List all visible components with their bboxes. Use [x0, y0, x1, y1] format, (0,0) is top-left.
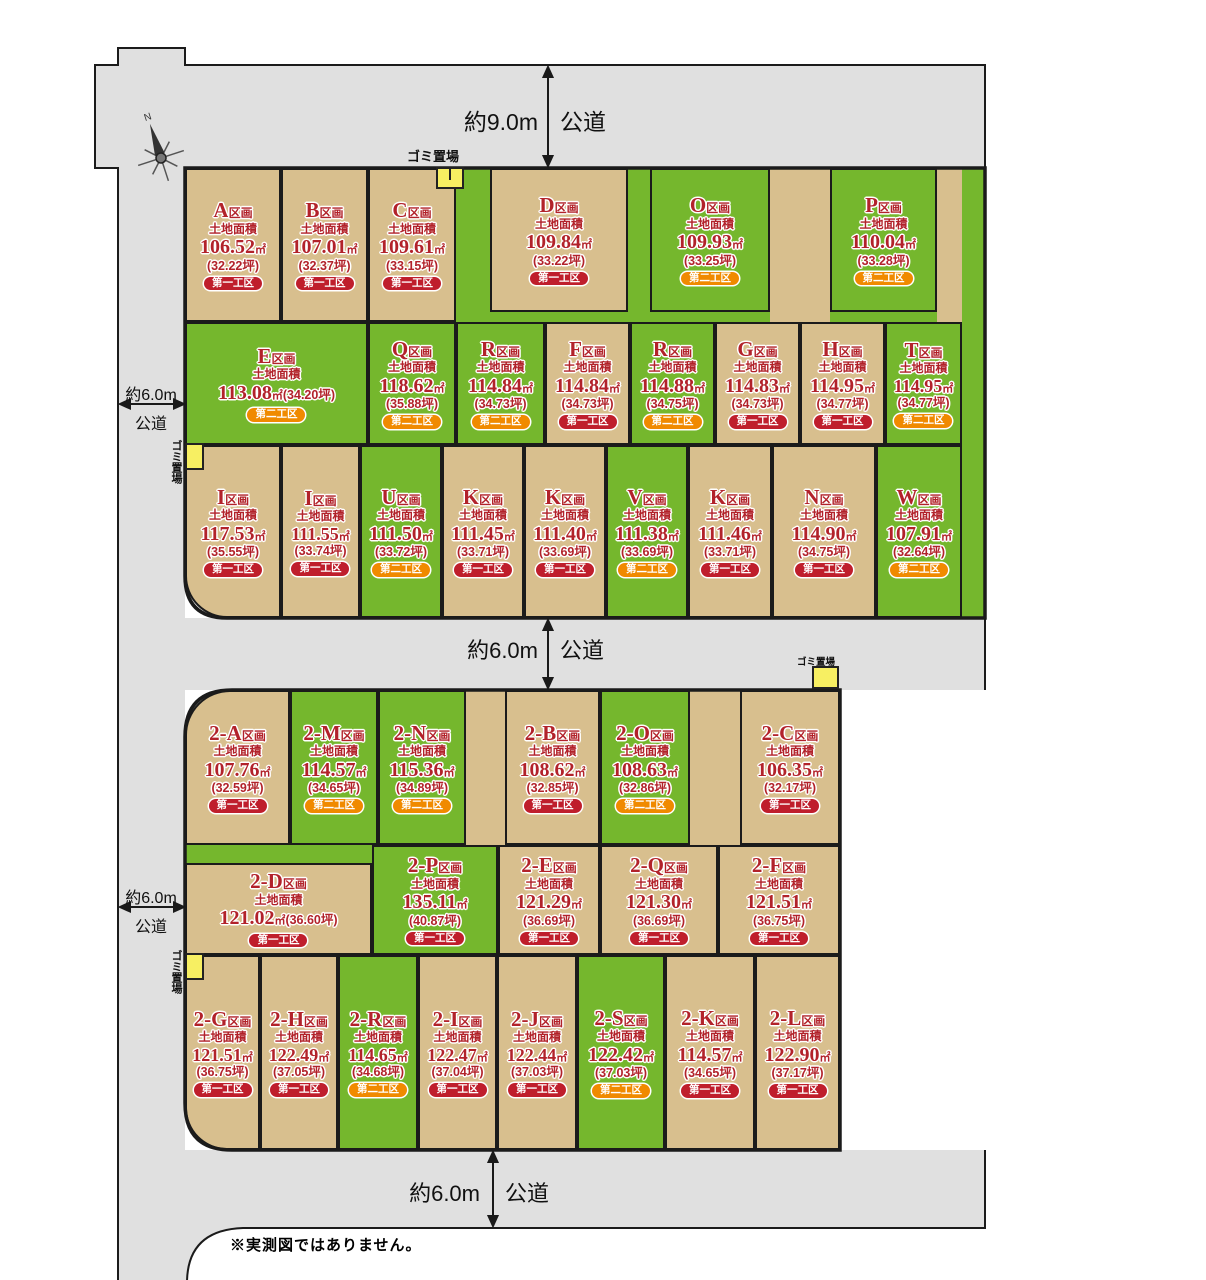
plot-label: V区画土地面積111.38㎡(33.69坪)第二工区	[615, 486, 679, 577]
plot-cell-2J: 2-J区画土地面積122.44㎡(37.03坪)第一工区	[497, 955, 577, 1150]
plot-area-value: 107.01㎡	[292, 236, 358, 258]
plot-tsubo-value: (32.86坪)	[612, 781, 678, 795]
plot-label: 2-A区画土地面積107.76㎡(32.59坪)第一工区	[205, 722, 271, 813]
phase-badge: 第一工区	[204, 563, 262, 577]
plot-area-title: 土地面積	[379, 223, 445, 236]
plot-area-value: 114.90㎡	[792, 523, 857, 545]
phase-badge: 第二工区	[890, 563, 948, 577]
road-middle-width-label: 約6.0m	[425, 633, 538, 665]
plot-cell-R1: R区画土地面積114.84㎡(34.73坪)第二工区	[456, 322, 545, 445]
plot-label: 2-N区画土地面積115.36㎡(34.89坪)第二工区	[390, 722, 455, 813]
disclaimer-note: ※実測図ではありません。	[230, 1234, 422, 1255]
plot-letter: B	[305, 198, 319, 222]
plot-label: A区画土地面積106.52㎡(32.22坪)第一工区	[200, 199, 266, 290]
plot-cell-W: W区画土地面積107.91㎡(32.64坪)第二工区	[876, 445, 962, 618]
phase-badge: 第一工区	[769, 1084, 827, 1098]
garbage-label-right: ゴミ置場	[797, 654, 835, 668]
plot-letter: 2-S	[594, 1006, 623, 1030]
plot-area-title: 土地面積	[886, 509, 952, 522]
plot-letter: E	[257, 344, 271, 368]
phase-badge: 第二工区	[644, 415, 702, 429]
phase-badge: 第一工区	[761, 799, 819, 813]
plot-area-title: 土地面積	[746, 878, 812, 891]
plot-label: 2-G区画土地面積121.51㎡(36.75坪)第一工区	[192, 1008, 253, 1098]
plot-area-value: 111.38㎡	[615, 523, 679, 545]
phase-badge: 第一工区	[406, 932, 464, 946]
phase-badge: 第一工区	[630, 932, 688, 946]
plot-area-value: 114.84㎡	[468, 375, 533, 397]
phase-badge: 第二工区	[855, 272, 913, 286]
plot-tsubo-value: (34.65坪)	[302, 781, 367, 795]
plot-cell-I2: I区画土地面積111.55㎡(33.74坪)第一工区	[281, 445, 360, 618]
garbage-label-left-upper: ゴミ置場	[168, 440, 184, 484]
plot-area-title: 土地面積	[792, 509, 857, 522]
plot-area-title: 土地面積	[468, 361, 533, 374]
plot-area-title: 土地面積	[640, 361, 705, 374]
phase-badge: 第二工区	[393, 799, 451, 813]
plot-letter: 2-H	[270, 1007, 304, 1031]
plot-label: 2-H区画土地面積122.49㎡(37.05坪)第一工区	[269, 1008, 330, 1098]
plot-letter: 2-R	[350, 1007, 383, 1031]
plot-area-value: 111.46㎡	[698, 523, 762, 545]
plot-tsubo-value: (37.05坪)	[269, 1065, 330, 1079]
plot-tsubo-value: (34.77坪)	[810, 397, 875, 411]
plot-label: I区画土地面積117.53㎡(35.55坪)第一工区	[201, 486, 266, 577]
plot-label: D区画土地面積109.84㎡(33.22坪)第一工区	[526, 194, 592, 285]
plot-label: 2-K区画土地面積114.57㎡(34.65坪)第一工区	[678, 1007, 743, 1098]
plot-tsubo-value: (33.69坪)	[615, 545, 679, 559]
plot-area-value: 106.52㎡	[200, 236, 266, 258]
plot-area-value: 111.50㎡	[369, 523, 433, 545]
plot-cell-D: D区画土地面積109.84㎡(33.22坪)第一工区	[490, 168, 628, 312]
plot-letter: Q	[392, 337, 408, 361]
plot-area-value: 108.63㎡	[612, 759, 678, 781]
phase-badge: 第一工区	[270, 1083, 328, 1097]
road-top-width-label: 約9.0m	[420, 103, 538, 137]
plot-tsubo-value: (34.89坪)	[390, 781, 455, 795]
plot-area-title: 土地面積	[292, 223, 358, 236]
phase-badge: 第一工区	[204, 277, 262, 291]
plot-letter: 2-M	[303, 721, 340, 745]
plot-tsubo-value: (34.65坪)	[678, 1066, 743, 1080]
plot-label: 2-R区画土地面積114.65㎡(34.68坪)第二工区	[348, 1008, 408, 1098]
phase-badge: 第二工区	[247, 408, 305, 422]
plot-cell-P: P区画土地面積110.04㎡(33.28坪)第二工区	[830, 168, 937, 312]
land-plot-map: A区画土地面積106.52㎡(32.22坪)第一工区B区画土地面積107.01㎡…	[0, 0, 1206, 1280]
plot-area-value: 122.42㎡	[588, 1044, 654, 1066]
plot-letter: F	[569, 337, 582, 361]
plot-area-value: 114.65㎡	[348, 1045, 408, 1066]
phase-badge: 第二工区	[472, 415, 530, 429]
plot-cell-2N: 2-N区画土地面積115.36㎡(34.89坪)第二工区	[378, 690, 466, 845]
road-top-type-label: 公道	[560, 103, 606, 137]
plot-area-title: 土地面積	[516, 878, 582, 891]
plot-letter: K	[710, 485, 726, 509]
plot-label: K区画土地面積111.45㎡(33.71坪)第一工区	[451, 486, 515, 577]
plot-tsubo-value: (36.69坪)	[516, 914, 582, 928]
plot-label: K区画土地面積111.46㎡(33.71坪)第一工区	[698, 486, 762, 577]
plot-cell-C: C区画土地面積109.61㎡(33.15坪)第一工区	[368, 168, 456, 322]
phase-badge: 第二工区	[681, 272, 739, 286]
phase-badge: 第一工区	[524, 799, 582, 813]
plot-cell-B: B区画土地面積107.01㎡(32.37坪)第一工区	[281, 168, 368, 322]
plot-tsubo-value: (33.22坪)	[526, 254, 592, 268]
plot-area-title: 土地面積	[526, 218, 592, 231]
plot-letter: 2-E	[521, 853, 553, 877]
plot-area-value: 107.76㎡	[205, 759, 271, 781]
plot-label: 2-P区画土地面積135.11㎡(40.87坪)第一工区	[403, 854, 468, 945]
plot-label: 2-F区画土地面積121.51㎡(36.75坪)第一工区	[746, 854, 812, 945]
plot-letter: 2-P	[408, 853, 438, 877]
plot-cell-O: O区画土地面積109.93㎡(33.25坪)第二工区	[650, 168, 770, 312]
plot-area-value: 108.62㎡	[520, 759, 586, 781]
plot-area-title: 土地面積	[269, 1031, 330, 1044]
plot-area-title: 土地面積	[626, 878, 692, 891]
plot-area-value: 114.95㎡	[894, 376, 954, 397]
plot-letter: 2-K	[681, 1006, 715, 1030]
plot-tsubo-value: (33.71坪)	[698, 545, 762, 559]
plot-label: 2-Q区画土地面積121.30㎡(36.69坪)第一工区	[626, 854, 692, 945]
plot-cell-R2: R区画土地面積114.88㎡(34.75坪)第二工区	[630, 322, 715, 445]
plot-label: K区画土地面積111.40㎡(33.69坪)第一工区	[533, 486, 597, 577]
plot-extension-area	[456, 168, 490, 322]
plot-cell-2I: 2-I区画土地面積122.47㎡(37.04坪)第一工区	[418, 955, 497, 1150]
plot-extension-area	[937, 168, 962, 322]
phase-badge: 第一工区	[559, 415, 617, 429]
plot-label: R区画土地面積114.84㎡(34.73坪)第二工区	[468, 338, 533, 429]
plot-area-title: 土地面積	[678, 1030, 743, 1043]
plot-area-value: 109.84㎡	[526, 231, 592, 253]
plot-tsubo-value: (37.03坪)	[507, 1065, 568, 1079]
plot-extension-area	[770, 168, 830, 322]
plot-label: 2-L区画土地面積122.90㎡(37.17坪)第一工区	[765, 1007, 831, 1098]
plot-area-value: 121.02㎡(36.60坪)	[219, 907, 337, 929]
phase-badge: 第二工区	[383, 415, 441, 429]
phase-badge: 第一工区	[454, 563, 512, 577]
plot-letter: P	[865, 193, 878, 217]
plot-cell-Q: Q区画土地面積118.62㎡(35.88坪)第二工区	[368, 322, 456, 445]
plot-tsubo-value: (34.75坪)	[640, 397, 705, 411]
plot-area-title: 土地面積	[810, 361, 875, 374]
plot-label: 2-J区画土地面積122.44㎡(37.03坪)第一工区	[507, 1008, 568, 1098]
plot-extension-area	[466, 690, 505, 845]
plot-area-value: 117.53㎡	[201, 523, 266, 545]
plot-area-title: 土地面積	[757, 745, 823, 758]
phase-badge: 第一工区	[795, 563, 853, 577]
plot-area-value: 121.51㎡	[746, 891, 812, 913]
plot-letter: 2-F	[752, 853, 782, 877]
plot-cell-2E: 2-E区画土地面積121.29㎡(36.69坪)第一工区	[498, 845, 600, 955]
plot-extension-area	[490, 312, 628, 322]
plot-tsubo-value: (32.59坪)	[205, 781, 271, 795]
plot-area-title: 土地面積	[291, 510, 350, 523]
plot-area-value: 121.30㎡	[626, 891, 692, 913]
plot-cell-2C: 2-C区画土地面積106.35㎡(32.17坪)第一工区	[740, 690, 840, 845]
plot-extension-area	[830, 312, 937, 322]
plot-area-value: 111.55㎡	[291, 524, 350, 545]
phase-badge: 第一工区	[701, 563, 759, 577]
phase-badge: 第一工区	[729, 415, 787, 429]
plot-area-value: 107.91㎡	[886, 523, 952, 545]
plot-letter: W	[896, 485, 917, 509]
plot-label: C区画土地面積109.61㎡(33.15坪)第一工区	[379, 199, 445, 290]
phase-badge: 第一工区	[530, 272, 588, 286]
plot-cell-2S: 2-S区画土地面積122.42㎡(37.03坪)第二工区	[577, 955, 665, 1150]
plot-tsubo-value: (37.17坪)	[765, 1066, 831, 1080]
plot-letter: 2-O	[616, 721, 650, 745]
plot-letter: K	[463, 485, 479, 509]
plot-letter: A	[213, 198, 228, 222]
plot-cell-T: T区画土地面積114.95㎡(34.77坪)第二工区	[885, 322, 962, 445]
plot-cell-2D: 2-D区画土地面積121.02㎡(36.60坪)第一工区	[185, 863, 372, 955]
phase-badge: 第一工区	[814, 415, 872, 429]
plot-letter: I	[217, 485, 225, 509]
phase-badge: 第一工区	[249, 934, 307, 948]
plot-area-value: 135.11㎡	[403, 891, 468, 913]
plot-label: Q区画土地面積118.62㎡(35.88坪)第二工区	[380, 338, 445, 429]
plot-letter: D	[539, 193, 554, 217]
plot-label: 2-I区画土地面積122.47㎡(37.04坪)第一工区	[427, 1008, 488, 1098]
plot-area-value: 109.93㎡	[677, 231, 743, 253]
plot-extension-area	[962, 168, 985, 618]
plot-cell-2K: 2-K区画土地面積114.57㎡(34.65坪)第一工区	[665, 955, 755, 1150]
plot-tsubo-value: (36.75坪)	[192, 1065, 253, 1079]
plot-cell-K3: K区画土地面積111.46㎡(33.71坪)第一工区	[688, 445, 772, 618]
phase-badge: 第一工区	[508, 1083, 566, 1097]
plot-cell-2R: 2-R区画土地面積114.65㎡(34.68坪)第二工区	[338, 955, 418, 1150]
phase-badge: 第一工区	[429, 1083, 487, 1097]
plot-label: N区画土地面積114.90㎡(34.75坪)第一工区	[792, 486, 857, 577]
plot-cell-U: U区画土地面積111.50㎡(33.72坪)第二工区	[360, 445, 442, 618]
road-left-lower-width-label: 約6.0m	[118, 884, 184, 908]
plot-tsubo-value: (32.22坪)	[200, 259, 266, 273]
plot-letter: I	[304, 486, 312, 510]
plot-area-value: 114.83㎡	[725, 375, 790, 397]
plot-area-value: 122.90㎡	[765, 1044, 831, 1066]
plot-letter: C	[392, 198, 407, 222]
plot-area-value: 106.35㎡	[757, 759, 823, 781]
plot-area-value: 114.57㎡	[678, 1044, 743, 1066]
plot-letter: 2-I	[433, 1007, 459, 1031]
plot-area-title: 土地面積	[851, 218, 916, 231]
phase-badge: 第二工区	[592, 1084, 650, 1098]
plot-area-value: 109.61㎡	[379, 236, 445, 258]
plot-tsubo-value: (34.73坪)	[725, 397, 790, 411]
plot-cell-V: V区画土地面積111.38㎡(33.69坪)第二工区	[606, 445, 688, 618]
plot-tsubo-value: (33.74坪)	[291, 544, 350, 558]
plot-letter: N	[804, 485, 819, 509]
plot-cell-2H: 2-H区画土地面積122.49㎡(37.05坪)第一工区	[260, 955, 338, 1150]
garbage-label-left-lower: ゴミ置場	[168, 950, 184, 994]
plot-area-value: 111.45㎡	[451, 523, 515, 545]
plot-tsubo-value: (40.87坪)	[403, 914, 468, 928]
plot-extension-area	[628, 168, 650, 322]
plot-area-title: 土地面積	[451, 509, 515, 522]
plot-tsubo-value: (34.75坪)	[792, 545, 857, 559]
plot-area-value: 115.36㎡	[390, 759, 455, 781]
plot-letter: O	[690, 193, 706, 217]
plot-tsubo-value: (36.75坪)	[746, 914, 812, 928]
plot-label: H区画土地面積114.95㎡(34.77坪)第一工区	[810, 338, 875, 429]
plot-area-title: 土地面積	[380, 361, 445, 374]
plot-area-value: 111.40㎡	[533, 523, 597, 545]
plot-area-title: 土地面積	[533, 509, 597, 522]
plot-extension-area	[650, 312, 770, 322]
plot-label: F区画土地面積114.84㎡(34.73坪)第一工区	[555, 338, 620, 429]
plot-cell-2L: 2-L区画土地面積122.90㎡(37.17坪)第一工区	[755, 955, 840, 1150]
phase-badge: 第一工区	[750, 932, 808, 946]
plot-label: 2-M区画土地面積114.57㎡(34.65坪)第二工区	[302, 722, 367, 813]
road-bottom-type-label: 公道	[505, 1176, 549, 1208]
plot-tsubo-value: (33.72坪)	[369, 545, 433, 559]
plot-letter: V	[627, 485, 642, 509]
plot-area-value: 114.88㎡	[640, 375, 705, 397]
plot-tsubo-value: (34.68坪)	[348, 1065, 408, 1079]
plot-area-value: 114.57㎡	[302, 759, 367, 781]
plot-label: I区画土地面積111.55㎡(33.74坪)第一工区	[291, 487, 350, 577]
plot-area-title: 土地面積	[403, 878, 468, 891]
plot-letter: 2-L	[770, 1006, 802, 1030]
phase-badge: 第一工区	[296, 277, 354, 291]
plot-area-title: 土地面積	[555, 361, 620, 374]
plot-area-title: 土地面積	[192, 1031, 253, 1044]
plot-cell-2B: 2-B区画土地面積108.62㎡(32.85坪)第一工区	[505, 690, 600, 845]
plot-area-title: 土地面積	[588, 1030, 654, 1043]
plot-cell-2F: 2-F区画土地面積121.51㎡(36.75坪)第一工区	[718, 845, 840, 955]
plot-tsubo-value: (34.73坪)	[468, 397, 533, 411]
plot-letter: G	[737, 337, 753, 361]
plot-tsubo-value: (32.64坪)	[886, 545, 952, 559]
plot-tsubo-value: (37.03坪)	[588, 1066, 654, 1080]
plot-label: 2-D区画土地面積121.02㎡(36.60坪)第一工区	[219, 870, 337, 947]
plot-area-title: 土地面積	[218, 368, 335, 381]
phase-badge: 第二工区	[349, 1083, 407, 1097]
plot-letter: 2-N	[394, 721, 427, 745]
phase-badge: 第二工区	[372, 563, 430, 577]
phase-badge: 第二工区	[616, 799, 674, 813]
plot-cell-H: H区画土地面積114.95㎡(34.77坪)第一工区	[800, 322, 885, 445]
plot-area-title: 土地面積	[698, 509, 762, 522]
plot-area-title: 土地面積	[200, 223, 266, 236]
plot-cell-2A: 2-A区画土地面積107.76㎡(32.59坪)第一工区	[185, 690, 290, 845]
plot-letter: 2-A	[209, 721, 242, 745]
plot-letter: R	[653, 337, 668, 361]
phase-badge: 第二工区	[618, 563, 676, 577]
plot-area-title: 土地面積	[427, 1031, 488, 1044]
plot-area-title: 土地面積	[205, 745, 271, 758]
plot-area-title: 土地面積	[725, 361, 790, 374]
plot-area-title: 土地面積	[507, 1031, 568, 1044]
plot-letter: T	[904, 338, 918, 362]
plot-cell-2Q: 2-Q区画土地面積121.30㎡(36.69坪)第一工区	[600, 845, 718, 955]
plot-area-value: 122.44㎡	[507, 1045, 568, 1066]
road-left-upper-width-label: 約6.0m	[118, 381, 184, 405]
plot-cell-E: E区画土地面積113.08㎡(34.20坪)第二工区	[185, 322, 368, 445]
plot-area-title: 土地面積	[520, 745, 586, 758]
plot-area-value: 113.08㎡(34.20坪)	[218, 382, 335, 404]
phase-badge: 第一工区	[536, 563, 594, 577]
plot-tsubo-value: (33.71坪)	[451, 545, 515, 559]
plot-letter: U	[381, 485, 396, 509]
plot-label: W区画土地面積107.91㎡(32.64坪)第二工区	[886, 486, 952, 577]
phase-badge: 第二工区	[894, 414, 952, 428]
plot-tsubo-value: (36.69坪)	[626, 914, 692, 928]
plot-label: U区画土地面積111.50㎡(33.72坪)第二工区	[369, 486, 433, 577]
plot-tsubo-value: (33.25坪)	[677, 254, 743, 268]
plot-tsubo-value: (37.04坪)	[427, 1065, 488, 1079]
garbage-label-top: ゴミ置場	[407, 146, 459, 165]
phase-badge: 第一工区	[520, 932, 578, 946]
plot-tsubo-value: (32.37坪)	[292, 259, 358, 273]
phase-badge: 第一工区	[291, 562, 349, 576]
plot-label: 2-O区画土地面積108.63㎡(32.86坪)第二工区	[612, 722, 678, 813]
plot-tsubo-value: (33.69坪)	[533, 545, 597, 559]
plot-letter: 2-J	[511, 1007, 539, 1031]
plot-area-value: 110.04㎡	[851, 231, 916, 253]
plot-tsubo-value: (35.88坪)	[380, 397, 445, 411]
plot-label: 2-S区画土地面積122.42㎡(37.03坪)第二工区	[588, 1007, 654, 1098]
plot-area-value: 122.49㎡	[269, 1045, 330, 1066]
plot-tsubo-value: (34.73坪)	[555, 397, 620, 411]
plot-tsubo-value: (34.77坪)	[894, 396, 954, 410]
plot-label: R区画土地面積114.88㎡(34.75坪)第二工区	[640, 338, 705, 429]
road-middle-type-label: 公道	[560, 633, 604, 665]
plot-cell-2M: 2-M区画土地面積114.57㎡(34.65坪)第二工区	[290, 690, 378, 845]
plot-cell-I1: I区画土地面積117.53㎡(35.55坪)第一工区	[185, 445, 281, 618]
plot-cell-F: F区画土地面積114.84㎡(34.73坪)第一工区	[545, 322, 630, 445]
plot-area-title: 土地面積	[765, 1030, 831, 1043]
plot-cell-2O: 2-O区画土地面積108.63㎡(32.86坪)第二工区	[600, 690, 690, 845]
plot-tsubo-value: (33.15坪)	[379, 259, 445, 273]
plot-extension-area	[690, 690, 740, 845]
plot-area-title: 土地面積	[612, 745, 678, 758]
plot-cell-2P: 2-P区画土地面積135.11㎡(40.87坪)第一工区	[372, 845, 498, 955]
road-left-lower-type-label: 公道	[118, 913, 184, 937]
plot-letter: 2-B	[525, 721, 557, 745]
plot-label: G区画土地面積114.83㎡(34.73坪)第一工区	[725, 338, 790, 429]
road-bottom-width-label: 約6.0m	[370, 1176, 480, 1208]
plot-label: T区画土地面積114.95㎡(34.77坪)第二工区	[894, 339, 954, 429]
plot-letter: 2-Q	[630, 853, 664, 877]
plot-label: O区画土地面積109.93㎡(33.25坪)第二工区	[677, 194, 743, 285]
phase-badge: 第一工区	[209, 799, 267, 813]
plot-area-title: 土地面積	[615, 509, 679, 522]
plot-letter: K	[545, 485, 561, 509]
plot-letter: 2-D	[250, 869, 283, 893]
road-left-upper-type-label: 公道	[118, 410, 184, 434]
plot-area-value: 122.47㎡	[427, 1045, 488, 1066]
phase-badge: 第一工区	[383, 277, 441, 291]
plot-label: 2-E区画土地面積121.29㎡(36.69坪)第一工区	[516, 854, 582, 945]
plot-label: E区画土地面積113.08㎡(34.20坪)第二工区	[218, 345, 335, 422]
plot-label: B区画土地面積107.01㎡(32.37坪)第一工区	[292, 199, 358, 290]
plot-area-value: 114.84㎡	[555, 375, 620, 397]
plot-area-title: 土地面積	[302, 745, 367, 758]
plot-area-title: 土地面積	[201, 509, 266, 522]
plot-tsubo-value: (32.85坪)	[520, 781, 586, 795]
plot-letter: R	[481, 337, 496, 361]
phase-badge: 第二工区	[305, 799, 363, 813]
plot-cell-K1: K区画土地面積111.45㎡(33.71坪)第一工区	[442, 445, 524, 618]
plot-letter: H	[822, 337, 838, 361]
plot-letter: 2-C	[762, 721, 795, 745]
plot-area-title: 土地面積	[390, 745, 455, 758]
plot-tsubo-value: (32.17坪)	[757, 781, 823, 795]
plot-area-value: 114.95㎡	[810, 375, 875, 397]
phase-badge: 第一工区	[194, 1083, 252, 1097]
plot-cell-G: G区画土地面積114.83㎡(34.73坪)第一工区	[715, 322, 800, 445]
plot-tsubo-value: (33.28坪)	[851, 254, 916, 268]
